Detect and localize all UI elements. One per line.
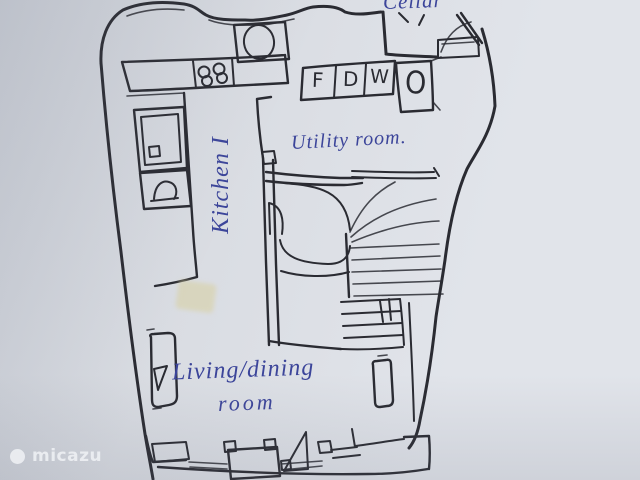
micazu-watermark: micazu [10,448,102,465]
kitchen-label: Kitchen I [209,105,239,265]
staircase [269,168,443,349]
tape-stain [175,279,217,313]
appliance-letter-f: F [312,70,324,90]
appliance-letter-d: D [343,69,359,90]
appliance-letter-o: O [405,68,427,100]
entry-door [281,432,322,471]
appliance-letter-w: W [370,68,389,88]
hob-burners [199,64,228,87]
living-dining-label-line1: Living/dining [172,356,315,385]
cellar-pointer-lines [399,13,424,25]
bottom-wall [146,436,227,469]
cellar-label: Cellar [383,0,443,13]
divider-wall [262,151,283,345]
radiator [373,355,393,407]
cellar-hatch [383,12,482,58]
living-dining-label-line2: room [218,391,276,415]
floorplan-photo: Cellar Utility room. Kitchen I Living/di… [0,0,640,480]
micazu-brand-text: micazu [32,448,102,465]
living-right-wall [409,303,414,421]
micazu-logo-icon [10,449,25,464]
oven-unit [134,107,187,172]
cabinet-unit [140,170,191,209]
bottom-wall-right [318,429,404,458]
